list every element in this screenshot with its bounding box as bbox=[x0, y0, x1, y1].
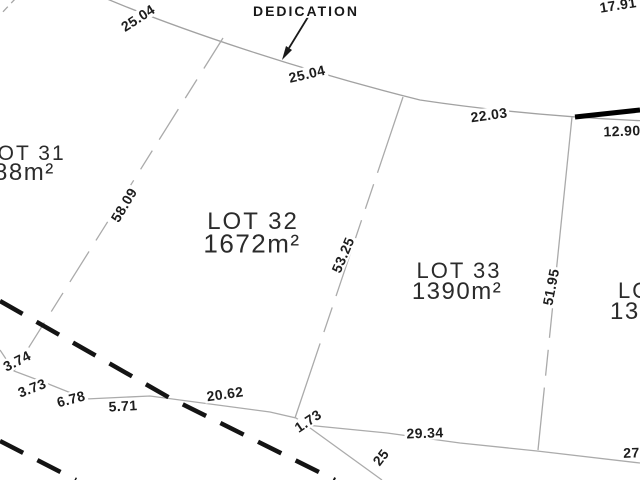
road-centerline-upper bbox=[0, 301, 335, 480]
dim-road-right: 12.90 bbox=[601, 123, 640, 139]
lot34-area: 130 bbox=[610, 300, 640, 324]
dedication-arrow-head bbox=[282, 46, 292, 60]
plat-map: DEDICATION 25.04 25.04 22.03 12.90 17.91… bbox=[0, 0, 640, 480]
dim-rear-5-71: 5.71 bbox=[106, 398, 140, 414]
road-centerline-lower bbox=[0, 441, 76, 480]
lot32-area: 1672m² bbox=[203, 231, 300, 258]
dim-rear-27: 27 bbox=[621, 445, 640, 460]
lot33-area: 1390m² bbox=[412, 280, 502, 304]
lot31-area: 88m² bbox=[0, 161, 55, 185]
dedication-label: DEDICATION bbox=[252, 4, 360, 18]
corner-boundary-tick bbox=[0, 0, 16, 15]
road-frontage-arc bbox=[100, 0, 640, 121]
road-boundary-thick bbox=[575, 110, 640, 117]
dim-rear-29-34: 29.34 bbox=[404, 425, 446, 441]
dedication-arrow-shaft bbox=[289, 17, 308, 48]
rear-boundary-polyline bbox=[0, 350, 640, 463]
